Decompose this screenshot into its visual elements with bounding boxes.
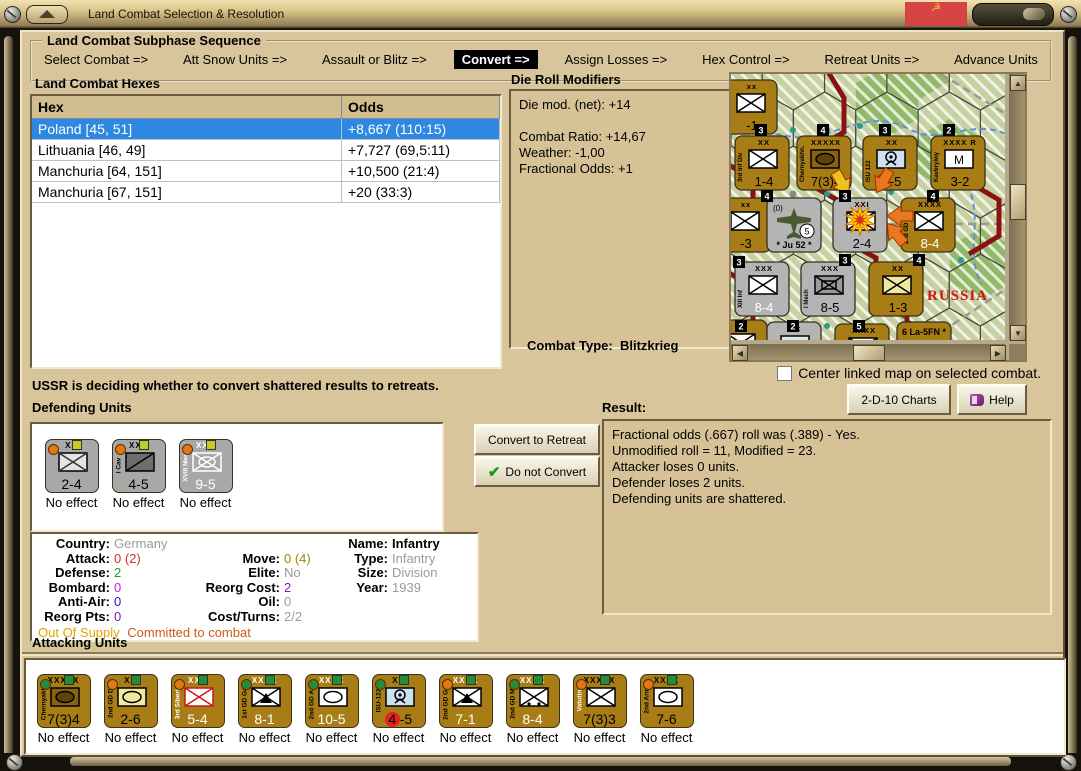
die-roll-line: Combat Ratio: +14,67	[519, 129, 731, 145]
hex-defense-number: 3	[879, 124, 891, 136]
combat-type-value: Blitzkrieg	[620, 338, 679, 353]
unit-effect-label: No effect	[432, 730, 499, 745]
disorganized-marker-icon: 4	[385, 712, 400, 727]
map-viewport[interactable]: xx-1XX3rd Inf Div1-4XXXXXChernyakhn.7(3)…	[731, 74, 1005, 340]
sequence-step-4[interactable]: Convert =>	[454, 50, 538, 69]
scroll-up-button[interactable]: ▲	[1010, 75, 1026, 91]
status-dot-icon	[399, 675, 409, 685]
inf_light-symbol-icon	[58, 452, 88, 477]
garrison-symbol-icon	[251, 687, 281, 712]
unit-strength-label: 7(3)3	[574, 711, 626, 727]
map-counter[interactable]: XXXX RMKavbrylwy3-2	[931, 136, 985, 190]
hq-symbol-icon	[50, 687, 80, 712]
hex-cell[interactable]: Manchuria [64, 151]	[32, 161, 342, 181]
odds-cell[interactable]: +10,500 (21:4)	[342, 161, 500, 181]
mini-map[interactable]: xx-1XX3rd Inf Div1-4XXXXXChernyakhn.7(3)…	[729, 72, 1027, 362]
hex-defense-number: 4	[761, 190, 773, 202]
svg-text:3: 3	[842, 256, 847, 266]
svg-text:4: 4	[764, 192, 769, 202]
svg-text:5: 5	[804, 227, 809, 237]
detail-value: 2	[284, 581, 340, 596]
combat-hexes-table[interactable]: Hex Odds Poland [45, 51]+8,667 (110:15)L…	[30, 94, 502, 369]
svg-text:XX: XX	[886, 138, 898, 147]
svg-text:4: 4	[916, 256, 921, 266]
die-roll-line: Weather: -1,00	[519, 145, 731, 161]
map-region-label: RUSSIA	[927, 288, 988, 304]
svg-text:4: 4	[930, 192, 935, 202]
status-dot-icon	[466, 675, 476, 685]
result-line: Fractional odds (.667) roll was (.389) -…	[612, 427, 1042, 443]
detail-label: Cost/Turns:	[196, 610, 280, 625]
svg-text:xx: xx	[741, 200, 751, 209]
title-bar: Land Combat Selection & Resolution ☭	[0, 0, 1081, 30]
unit-strength-label: 2-4	[46, 476, 98, 492]
hex-table-row[interactable]: Manchuria [64, 151]+10,500 (21:4)	[32, 161, 500, 182]
detail-label: Name:	[344, 537, 388, 552]
scroll-left-button[interactable]: ◀	[732, 345, 748, 361]
status-dot-icon	[139, 440, 149, 450]
svg-text:2-4: 2-4	[853, 236, 872, 251]
result-line: Defender loses 2 units.	[612, 475, 1042, 491]
detail-value: 0 (2)	[114, 552, 192, 567]
svg-text:M: M	[954, 153, 964, 167]
supply-dot-icon	[375, 679, 386, 690]
supply-dot-icon	[107, 679, 118, 690]
unit-counter[interactable]: XXXX2nd Arm7-6	[640, 674, 694, 728]
unit-effect-label: No effect	[164, 730, 231, 745]
convert-to-retreat-button[interactable]: Convert to Retreat	[474, 424, 600, 455]
window-frame-left	[0, 28, 18, 770]
combat-type-label: Combat Type:	[527, 338, 613, 353]
scroll-down-button[interactable]: ▼	[1010, 325, 1026, 341]
unit-effect-label: No effect	[30, 730, 97, 745]
svg-text:1-4: 1-4	[755, 174, 774, 189]
svg-text:-3: -3	[740, 236, 752, 251]
table-header: Hex Odds	[32, 96, 500, 119]
map-horizontal-scrollbar[interactable]: ◀ ▶	[731, 344, 1005, 360]
map-counter[interactable]: XXXXIII Inf8-4	[735, 262, 789, 316]
die-roll-line: Fractional Odds: +1	[519, 161, 731, 177]
dialog-content: Land Combat Subphase Sequence Select Com…	[20, 30, 1065, 757]
map-counter[interactable]: (0)5* Ju 52 *	[767, 198, 821, 252]
svg-text:ISU 122: ISU 122	[866, 160, 872, 182]
divider	[22, 652, 1063, 656]
unit-details-panel: Country:GermanyName:InfantryAttack:0 (2)…	[30, 532, 479, 642]
supply-dot-icon	[308, 679, 319, 690]
detail-value: Infantry	[392, 552, 471, 567]
unit-effect-label: No effect	[97, 730, 164, 745]
result-title: Result:	[602, 400, 646, 415]
unit-strength-label: 4-5	[373, 711, 425, 727]
status-dot-icon	[64, 675, 74, 685]
detail-label: Year:	[344, 581, 388, 596]
attacking-title: Attacking Units	[32, 635, 127, 650]
col-odds[interactable]: Odds	[342, 96, 500, 118]
unit-counter-block: XXXX1st GD Garr8-1No effect	[231, 665, 298, 753]
center-map-label: Center linked map on selected combat.	[798, 365, 1041, 381]
svg-text:XXX: XXX	[755, 264, 773, 273]
committed-flag: Committed to combat	[127, 625, 251, 640]
svg-text:(0): (0)	[773, 204, 783, 213]
svg-text:xx: xx	[747, 82, 757, 91]
hexes-title: Land Combat Hexes	[35, 76, 160, 91]
hex-defense-number: 2	[787, 320, 799, 332]
unit-counter-block: XXXXVIII Mech9-5No effect	[172, 430, 239, 510]
hex-defense-number: 3	[839, 190, 851, 202]
unit-effect-label: No effect	[365, 730, 432, 745]
unit-strength-label: 8-1	[239, 711, 291, 727]
sequence-step-3[interactable]: Assault or Blitz =>	[314, 50, 435, 69]
unit-strength-label: 8-4	[507, 711, 559, 727]
sequence-step-7[interactable]: Retreat Units =>	[817, 50, 928, 69]
svg-text:4: 4	[820, 126, 825, 136]
status-message: USSR is deciding whether to convert shat…	[32, 378, 439, 393]
supply-dot-icon	[509, 679, 520, 690]
detail-label: Reorg Pts:	[38, 610, 110, 625]
vscroll-thumb[interactable]	[1010, 184, 1026, 220]
svg-text:8-5: 8-5	[821, 300, 840, 315]
unit-counter[interactable]: XXXXXChernyakho.7(3)4	[37, 674, 91, 728]
hex-defense-number: 4	[927, 190, 939, 202]
detail-value: 0	[114, 581, 192, 596]
defending-units-panel: XX2-4No effectXXXI Cav4-5No effectXXXXVI…	[30, 422, 444, 532]
convert-button-label: Convert to Retreat	[488, 433, 586, 447]
svg-text:XXX: XXX	[821, 264, 839, 273]
mech_white-symbol-icon	[192, 452, 222, 477]
unit-counter[interactable]: XXXXXVatutin7(3)3	[573, 674, 627, 728]
svg-text:3: 3	[842, 192, 847, 202]
unit-counter-block: XXXI Cav4-5No effect	[105, 430, 172, 510]
hex-cell[interactable]: Lithuania [46, 49]	[32, 140, 342, 160]
status-dot-icon	[533, 675, 543, 685]
unit-strength-label: 7(3)4	[38, 711, 90, 727]
hex-defense-number: 3	[839, 254, 851, 266]
hex-table-row[interactable]: Manchuria [67, 151]+20 (33:3)	[32, 182, 500, 203]
unit-counter[interactable]: XXXX2nd GD Mot8-4	[506, 674, 560, 728]
hex-table-row[interactable]: Lithuania [46, 49]+7,727 (69,5:11)	[32, 140, 500, 161]
window-close-button[interactable]	[972, 3, 1054, 26]
unit-effect-label: No effect	[566, 730, 633, 745]
sequence-steps: Select Combat =>Att Snow Units =>Assault…	[36, 50, 1046, 69]
svg-text:2: 2	[790, 322, 795, 332]
hex-defense-number: 2	[735, 320, 747, 332]
attacking-units-panel: XXXXXChernyakho.7(3)4No effectXX2nd GD D…	[24, 658, 1066, 755]
help-button[interactable]: Help	[957, 384, 1027, 415]
motorized-symbol-icon	[519, 687, 549, 712]
svg-text:6 La-5FN *: 6 La-5FN *	[902, 327, 947, 337]
detail-value: 2/2	[284, 610, 340, 625]
check-icon: ✔	[488, 463, 501, 481]
unit-strength-label: 9-5	[180, 476, 232, 492]
inf_red-symbol-icon	[184, 687, 214, 712]
map-counter[interactable]: XX3rd Inf Div1-4	[735, 136, 789, 190]
garrison-symbol-icon	[452, 687, 482, 712]
detail-label: Elite:	[196, 566, 280, 581]
svg-text:1-3: 1-3	[889, 300, 908, 315]
combat-type: Combat Type: Blitzkrieg	[527, 338, 678, 353]
svg-text:3: 3	[882, 126, 887, 136]
map-counter[interactable]: XX1-3	[869, 262, 923, 316]
detail-label: Oil:	[196, 595, 280, 610]
detail-label: Reorg Cost:	[196, 581, 280, 596]
unit-counter[interactable]: XXXX1st GD Garr8-1	[238, 674, 292, 728]
svg-text:XX: XX	[892, 264, 904, 273]
svg-text:XIII Inf: XIII Inf	[738, 289, 744, 308]
detail-value: 2	[114, 566, 192, 581]
do-not-convert-label: Do not Convert	[505, 465, 586, 479]
result-line: Unmodified roll = 11, Modified = 23.	[612, 443, 1042, 459]
hex-defense-number: 3	[733, 256, 745, 268]
map-svg: xx-1XX3rd Inf Div1-4XXXXXChernyakhn.7(3)…	[731, 74, 1005, 340]
detail-label: Bombard:	[38, 581, 110, 596]
detail-label: Country:	[38, 537, 110, 552]
svg-text:* Ju 52 *: * Ju 52 *	[776, 240, 812, 250]
arm_yellow-symbol-icon	[117, 687, 147, 712]
svg-text:3rd Inf Div: 3rd Inf Div	[738, 152, 744, 182]
svg-text:8-4: 8-4	[755, 300, 774, 315]
hex-defense-number: 2	[943, 124, 955, 136]
detail-label: Type:	[344, 552, 388, 567]
svg-text:2: 2	[946, 126, 951, 136]
sequence-step-5[interactable]: Assign Losses =>	[557, 50, 676, 69]
die-roll-panel: Die mod. (net): +14 Combat Ratio: +14,67…	[509, 89, 741, 349]
svg-text:3: 3	[758, 126, 763, 136]
unit-strength-label: 7-6	[641, 711, 693, 727]
sequence-step-1[interactable]: Select Combat =>	[36, 50, 156, 69]
svg-text:3: 3	[736, 258, 741, 268]
unit-strength-label: 2-6	[105, 711, 157, 727]
result-panel: Fractional odds (.667) roll was (.389) -…	[602, 419, 1052, 615]
odds-cell[interactable]: +7,727 (69,5:11)	[342, 140, 500, 160]
cav-symbol-icon	[125, 452, 155, 477]
detail-value: Germany	[114, 537, 192, 552]
do-not-convert-button[interactable]: ✔ Do not Convert	[474, 456, 600, 487]
unit-strength-label: 10-5	[306, 711, 358, 727]
status-dot-icon	[131, 675, 141, 685]
status-dot-icon	[72, 440, 82, 450]
svg-text:2: 2	[738, 322, 743, 332]
screw-icon	[4, 6, 21, 23]
odds-cell[interactable]: +8,667 (110:15)	[342, 119, 500, 139]
charts-button[interactable]: 2-D-10 Charts	[847, 384, 951, 415]
result-line: Defending units are shattered.	[612, 491, 1042, 507]
defending-title: Defending Units	[32, 400, 132, 415]
ussr-flag-icon: ☭	[905, 2, 967, 26]
unit-counter-block: XXX3rd Siberian5-4No effect	[164, 665, 231, 753]
unit-effect-label: No effect	[38, 495, 105, 510]
unit-counter[interactable]: XX2-4	[45, 439, 99, 493]
window-title: Land Combat Selection & Resolution	[88, 7, 284, 21]
status-dot-icon	[667, 675, 677, 685]
map-counter[interactable]: XXXI Mech8-5	[801, 262, 855, 316]
svg-text:8-4: 8-4	[921, 236, 940, 251]
unit-counter[interactable]: XXXX2nd GD Arm10-5	[305, 674, 359, 728]
help-button-label: Help	[989, 393, 1014, 407]
unit-counter-block: XXXX2nd GD Mot8-4No effect	[499, 665, 566, 753]
unit-counter[interactable]: XX2nd GD Div2-6	[104, 674, 158, 728]
hex-defense-number: 4	[817, 124, 829, 136]
supply-dot-icon	[576, 679, 587, 690]
detail-label: Move:	[196, 552, 280, 567]
detail-label: Defense:	[38, 566, 110, 581]
die-roll-line	[519, 113, 731, 129]
supply-dot-icon	[115, 444, 126, 455]
unit-counter-block: XXXX2nd GD Garr7-1No effect	[432, 665, 499, 753]
unit-counter[interactable]: XXXX2nd GD Garr7-1	[439, 674, 493, 728]
unit-effect-label: No effect	[231, 730, 298, 745]
sp_art-symbol-icon	[385, 687, 415, 712]
unit-counter[interactable]: XXX3rd Siberian5-4	[171, 674, 225, 728]
hex-defense-number: 5	[853, 320, 865, 332]
detail-label: Anti-Air:	[38, 595, 110, 610]
center-map-checkbox[interactable]	[777, 366, 792, 381]
result-line: Attacker loses 0 units.	[612, 459, 1042, 475]
odds-cell[interactable]: +20 (33:3)	[342, 182, 500, 202]
supply-dot-icon	[241, 679, 252, 690]
svg-text:3-2: 3-2	[951, 174, 970, 189]
hscroll-thumb[interactable]	[853, 345, 885, 361]
unit-strength-label: 4-5	[113, 476, 165, 492]
screw-icon	[1060, 6, 1077, 23]
charts-button-label: 2-D-10 Charts	[861, 393, 936, 407]
hex-cell[interactable]: Manchuria [67, 151]	[32, 182, 342, 202]
detail-value: 1939	[392, 581, 471, 596]
center-map-option[interactable]: Center linked map on selected combat.	[777, 365, 1041, 381]
status-dot-icon	[206, 440, 216, 450]
unit-counter-block: XXISU-1224-5No effect	[365, 665, 432, 753]
detail-value: Division	[392, 566, 471, 581]
hex-defense-number: 3	[755, 124, 767, 136]
sequence-step-8[interactable]: Advance Units	[946, 50, 1046, 69]
triangle-icon	[39, 10, 55, 18]
unit-counter-block: XXXXXChernyakho.7(3)4No effect	[30, 665, 97, 753]
unit-counter-block: XXXXXVatutin7(3)3No effect	[566, 665, 633, 753]
detail-value: 0 (4)	[284, 552, 340, 567]
hex-table-row[interactable]: Poland [45, 51]+8,667 (110:15)	[32, 119, 500, 140]
inf-symbol-icon	[586, 687, 616, 712]
detail-label: Attack:	[38, 552, 110, 567]
status-dot-icon	[600, 675, 610, 685]
col-hex[interactable]: Hex	[32, 96, 342, 118]
svg-text:XXI: XXI	[854, 200, 869, 209]
detail-value: Infantry	[392, 537, 471, 552]
unit-strength-label: 5-4	[172, 711, 224, 727]
unit-counter-block: XXXX2nd GD Arm10-5No effect	[298, 665, 365, 753]
unit-counter[interactable]: XXXXVIII Mech9-5	[179, 439, 233, 493]
svg-text:I Mech: I Mech	[804, 289, 810, 308]
status-dot-icon	[332, 675, 342, 685]
window-menu-button[interactable]	[26, 5, 68, 24]
armor-symbol-icon	[653, 687, 683, 712]
map-counter[interactable]: 6 La-5FN *	[897, 322, 951, 340]
unit-effect-label: No effect	[499, 730, 566, 745]
armor-symbol-icon	[318, 687, 348, 712]
unit-strength-label: 7-1	[440, 711, 492, 727]
svg-text:5: 5	[856, 322, 861, 332]
svg-text:XX: XX	[758, 138, 770, 147]
sequence-step-6[interactable]: Hex Control =>	[694, 50, 797, 69]
scrollbar-corner	[1009, 344, 1025, 360]
map-counter[interactable]: XXI2-4	[833, 198, 887, 252]
unit-counter-block: XX2-4No effect	[38, 430, 105, 510]
svg-text:XXXXX: XXXXX	[811, 138, 841, 147]
status-dot-icon	[265, 675, 275, 685]
detail-value: 0	[284, 595, 340, 610]
map-vertical-scrollbar[interactable]: ▲ ▼	[1009, 74, 1025, 340]
supply-dot-icon	[174, 679, 185, 690]
supply-dot-icon	[442, 679, 453, 690]
die-roll-title: Die Roll Modifiers	[511, 72, 621, 87]
hex-cell[interactable]: Poland [45, 51]	[32, 119, 342, 139]
supply-dot-icon	[40, 679, 51, 690]
supply-dot-icon	[48, 444, 59, 455]
map-counter[interactable]: xx-3	[731, 198, 771, 252]
sequence-step-2[interactable]: Att Snow Units =>	[175, 50, 295, 69]
svg-text:Kavbrylwy: Kavbrylwy	[934, 151, 940, 182]
svg-text:XXXX R: XXXX R	[943, 138, 977, 147]
detail-label: Size:	[344, 566, 388, 581]
unit-effect-label: No effect	[105, 495, 172, 510]
unit-effect-label: No effect	[633, 730, 700, 745]
scroll-right-button[interactable]: ▶	[990, 345, 1006, 361]
die-roll-line: Die mod. (net): +14	[519, 97, 731, 113]
hex-defense-number: 4	[913, 254, 925, 266]
unit-effect-label: No effect	[298, 730, 365, 745]
map-counter[interactable]: xx-1	[731, 80, 777, 134]
detail-value: 0	[114, 610, 192, 625]
supply-dot-icon	[182, 444, 193, 455]
sequence-title: Land Combat Subphase Sequence	[42, 33, 266, 48]
status-dot-icon	[198, 675, 208, 685]
unit-counter-block: XX2nd GD Div2-6No effect	[97, 665, 164, 753]
detail-value: No	[284, 566, 340, 581]
unit-effect-label: No effect	[172, 495, 239, 510]
unit-counter[interactable]: XXISU-1224-5	[372, 674, 426, 728]
unit-counter[interactable]: XXXI Cav4-5	[112, 439, 166, 493]
unit-counter-block: XXXX2nd Arm7-6No effect	[633, 665, 700, 753]
detail-value: 0	[114, 595, 192, 610]
help-book-icon	[970, 394, 984, 406]
svg-text:Chernyakhn.: Chernyakhn.	[800, 145, 806, 182]
map-counter[interactable]: XXXX2nd GD Mot8-4	[901, 198, 955, 252]
map-counter[interactable]: XXISU 1224-5	[863, 136, 917, 190]
supply-dot-icon	[643, 679, 654, 690]
